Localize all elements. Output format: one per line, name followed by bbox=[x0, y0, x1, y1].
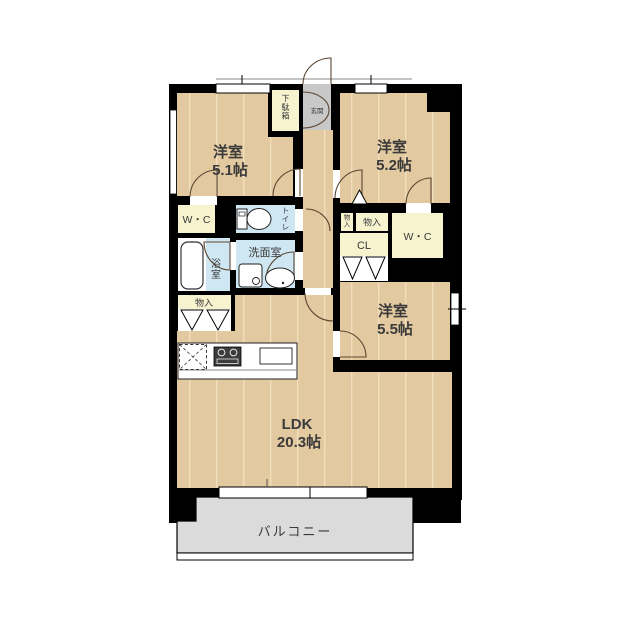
toilet-fixture bbox=[237, 209, 271, 230]
doorway-wc-left bbox=[190, 196, 217, 205]
label-balcony: バルコニー bbox=[258, 524, 333, 539]
window-left bbox=[170, 110, 177, 194]
label-room-5-2-size: 5.2帖 bbox=[376, 156, 412, 174]
doorway-room-5-5 bbox=[333, 331, 340, 357]
window-top-right bbox=[355, 84, 387, 93]
label-storage-mini: 物入 bbox=[344, 213, 351, 229]
balcony-railing bbox=[177, 553, 413, 560]
label-closet-cl: CL bbox=[357, 240, 371, 252]
label-room-5-5: 洋室 bbox=[378, 302, 408, 320]
washbasin bbox=[266, 268, 295, 288]
floor-plan-svg: 洋室 5.1帖 洋室 5.2帖 洋室 5.5帖 LDK 20.3帖 バルコニー … bbox=[0, 0, 640, 640]
stove bbox=[214, 347, 241, 366]
label-room-5-5-size: 5.5帖 bbox=[377, 320, 413, 338]
floor-plan-image: 洋室 5.1帖 洋室 5.2帖 洋室 5.5帖 LDK 20.3帖 バルコニー … bbox=[0, 0, 640, 640]
label-shoe-cabinet: 下駄箱 bbox=[282, 94, 290, 121]
label-storage-right: 物入 bbox=[363, 217, 381, 228]
kitchen-counter bbox=[178, 343, 297, 379]
sliding-glass-door bbox=[219, 487, 367, 498]
label-wc-left: W・C bbox=[183, 214, 211, 226]
doorway-wc-right bbox=[406, 203, 431, 213]
doorway-bathroom bbox=[230, 242, 236, 270]
entrance-genkan bbox=[303, 84, 331, 130]
washing-machine bbox=[239, 264, 262, 287]
doorway-room-5-1 bbox=[295, 169, 303, 197]
ldk-floor-upper bbox=[235, 295, 333, 331]
label-ldk-size: 20.3帖 bbox=[277, 433, 321, 451]
ldk-floor-right bbox=[333, 372, 452, 488]
kitchen-sink bbox=[260, 348, 292, 364]
label-room-5-1: 洋室 bbox=[213, 143, 243, 161]
wall-top-right-notch bbox=[427, 84, 462, 112]
doorway-washroom bbox=[295, 252, 303, 280]
label-toilet: トイレ bbox=[282, 206, 290, 232]
label-room-5-2: 洋室 bbox=[377, 138, 407, 156]
label-washroom: 洗面室 bbox=[249, 245, 282, 259]
doorway-toilet bbox=[295, 209, 303, 231]
doorway-ldk bbox=[305, 288, 331, 295]
label-ldk: LDK bbox=[282, 416, 313, 433]
label-wc-right: W・C bbox=[404, 231, 432, 243]
label-storage-left: 物入 bbox=[195, 297, 213, 308]
label-bathroom: 浴室 bbox=[211, 258, 221, 281]
window-top-left bbox=[216, 84, 270, 93]
bathtub bbox=[181, 242, 203, 289]
label-room-5-1-size: 5.1帖 bbox=[212, 161, 248, 179]
label-entrance: 玄関 bbox=[311, 106, 324, 115]
